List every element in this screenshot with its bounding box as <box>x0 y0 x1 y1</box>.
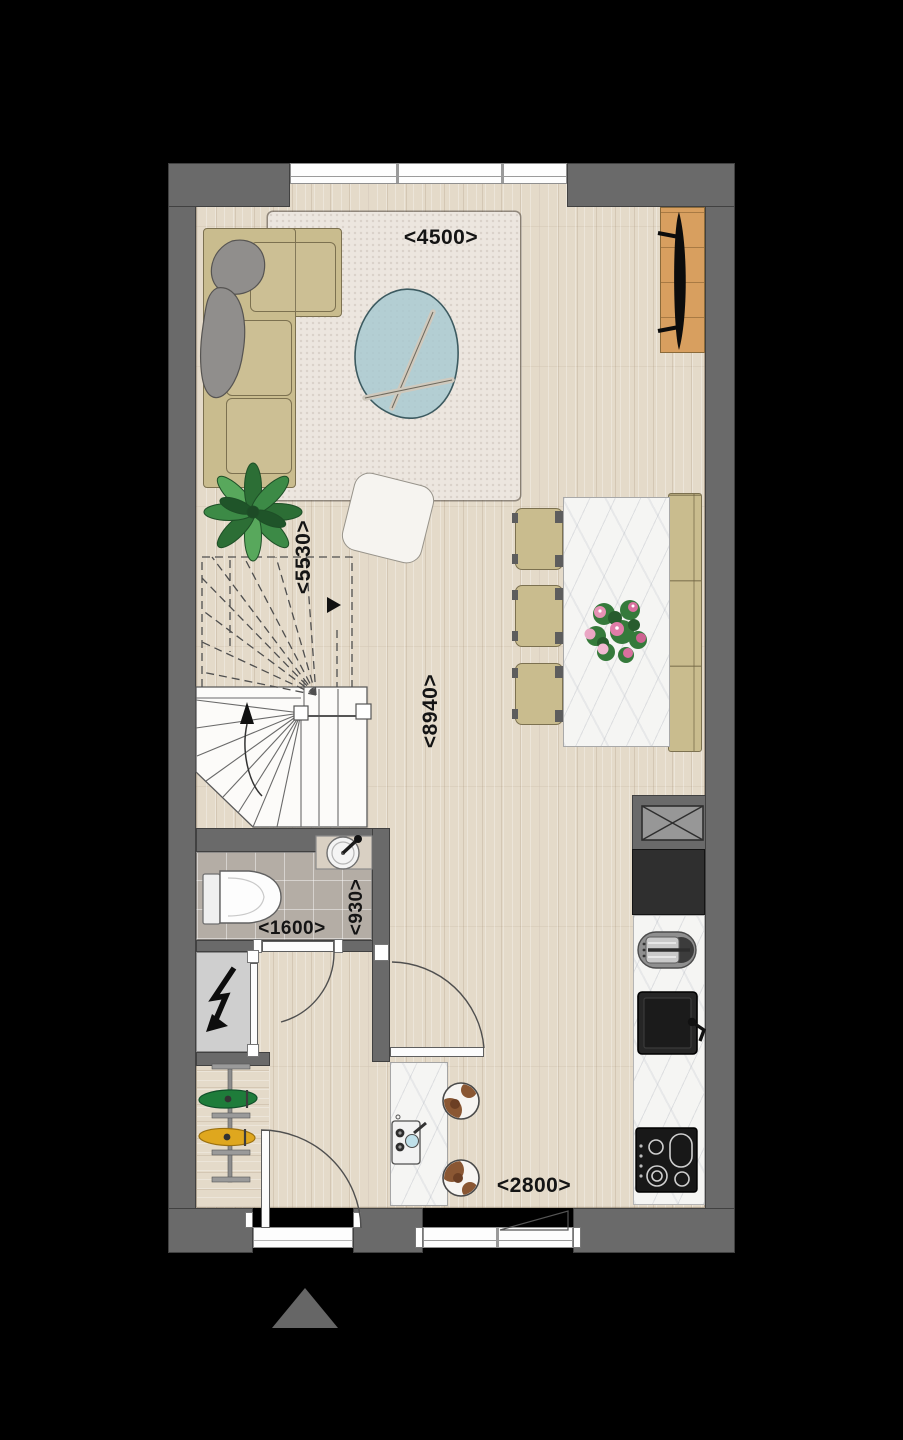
bottom-wall-right <box>573 1208 735 1253</box>
dining-chair-2 <box>515 585 563 647</box>
closet-door-frame-top <box>247 950 259 963</box>
top-left-wall-block <box>168 163 290 207</box>
bottom-window-mullion <box>496 1228 499 1247</box>
bottom-wall-left <box>168 1208 253 1253</box>
dining-chair-3 <box>515 663 563 725</box>
floor-plan: <4500> <5530> <8940> <1600> <930> <2800> <box>0 0 903 1440</box>
dining-chair-1 <box>515 508 563 570</box>
front-door-frame-right <box>353 1212 361 1228</box>
dim-room-depth: <8940> <box>419 674 443 748</box>
top-right-wall-block <box>567 163 735 207</box>
front-door-frame-left <box>245 1212 253 1228</box>
kitchen-door-leaf <box>390 1047 484 1057</box>
top-window-mullion-2 <box>501 164 504 183</box>
kitchen-counter <box>633 915 705 1205</box>
meter-closet-floor <box>196 952 254 1052</box>
toilet-door-leaf <box>262 941 334 952</box>
hall-desk <box>390 1062 448 1206</box>
left-exterior-wall <box>168 163 196 1253</box>
dim-stair-zone: <5530> <box>292 520 316 594</box>
closet-door-frame-bottom <box>247 1044 259 1057</box>
dim-toilet-depth: <930> <box>346 879 368 935</box>
sofa-cushion-1 <box>226 320 292 396</box>
closet-door-leaf <box>250 963 258 1045</box>
dining-table <box>563 497 670 747</box>
hall-door-frame <box>374 944 389 961</box>
front-door-leaf <box>261 1130 270 1228</box>
kitchen-shaft-wall <box>632 795 706 850</box>
front-door-threshold <box>253 1227 353 1248</box>
toilet-top-wall <box>196 828 390 852</box>
bike-storage-floor <box>197 1066 269 1207</box>
dining-bench <box>668 493 702 752</box>
bottom-window-frame-left <box>415 1227 423 1248</box>
dim-kitchen-zone: <2800> <box>497 1174 571 1198</box>
kitchen-tall-cabinet <box>632 849 705 915</box>
top-window <box>290 163 567 184</box>
sofa-cushion-chaise <box>250 242 336 312</box>
tv-console <box>660 207 705 353</box>
right-exterior-wall <box>705 163 735 1253</box>
bottom-window-frame-right <box>573 1227 581 1248</box>
dim-living-width: <4500> <box>404 226 478 250</box>
entrance-triangle-icon <box>272 1288 338 1328</box>
sofa-cushion-2 <box>226 398 292 474</box>
toilet-door-frame-right <box>334 939 343 953</box>
dim-toilet-width: <1600> <box>258 918 325 940</box>
bottom-wall-middle <box>353 1208 423 1253</box>
top-window-mullion-1 <box>396 164 399 183</box>
